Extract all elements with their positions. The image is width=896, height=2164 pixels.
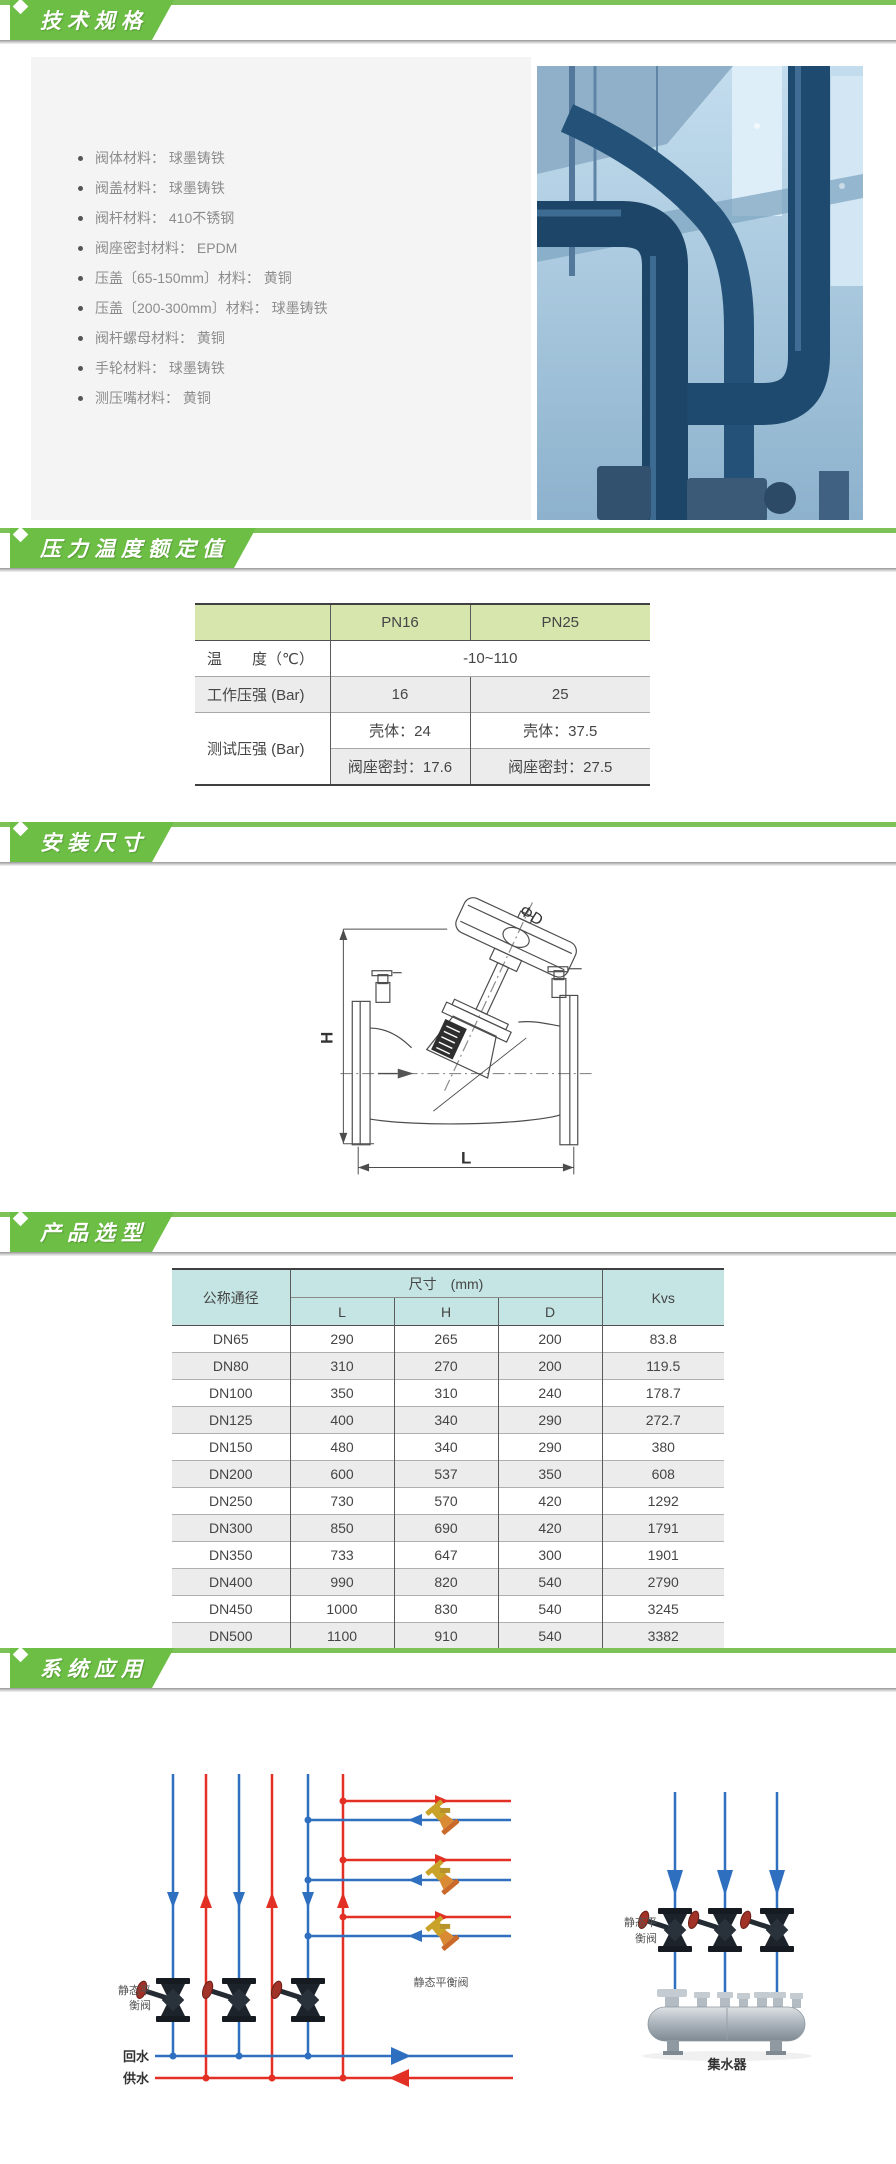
test-pressure-label: 测试压强 (Bar) [195, 713, 330, 786]
table-row: 测试压强 (Bar) 壳体：24 壳体：37.5 [195, 713, 650, 749]
h-cell: 690 [394, 1515, 498, 1542]
kvs-cell: 3245 [602, 1596, 724, 1623]
l-cell: 1100 [290, 1623, 394, 1651]
d-cell: 290 [498, 1434, 602, 1461]
d-cell: 420 [498, 1488, 602, 1515]
h-cell: 820 [394, 1569, 498, 1596]
table-row: DN150480340290380 [172, 1434, 724, 1461]
d-cell: 200 [498, 1326, 602, 1353]
h-cell: 340 [394, 1434, 498, 1461]
kvs-cell: 2790 [602, 1569, 724, 1596]
manifold-nozzles [657, 1989, 803, 2008]
bullet-dot-icon [78, 306, 83, 311]
header-shadow [0, 862, 896, 866]
bullet-text: 压盖〔65-150mm〕材料： 黄铜 [95, 268, 292, 288]
dn-cell: DN450 [172, 1596, 290, 1623]
red-junction-dots [203, 1798, 347, 2082]
dn-cell: DN400 [172, 1569, 290, 1596]
bullet-text: 阀座密封材料： EPDM [95, 238, 237, 258]
d-cell: 200 [498, 1353, 602, 1380]
kvs-cell: 83.8 [602, 1326, 724, 1353]
d-cell: 420 [498, 1515, 602, 1542]
bullet-item: 手轮材料： 球墨铸铁 [78, 353, 531, 383]
d-cell: 540 [498, 1569, 602, 1596]
h-cell: 340 [394, 1407, 498, 1434]
h-cell: 830 [394, 1596, 498, 1623]
bullet-dot-icon [78, 396, 83, 401]
temp-value: -10~110 [330, 641, 650, 677]
l-cell: 600 [290, 1461, 394, 1488]
d-cell: 240 [498, 1380, 602, 1407]
table-row: 温 度（℃） -10~110 [195, 641, 650, 677]
static-balancing-valve-icon [687, 1908, 742, 1952]
l-dimension: L [358, 1147, 574, 1175]
table-row: DN50011009105403382 [172, 1623, 724, 1651]
bullet-text: 压盖〔200-300mm〕材料： 球墨铸铁 [95, 298, 328, 318]
valve-label-line1: 静态平 [118, 1983, 151, 1997]
dn-cell: DN65 [172, 1326, 290, 1353]
water-collector-manifold [642, 1989, 812, 2061]
h-cell: 265 [394, 1326, 498, 1353]
h-cell: 310 [394, 1380, 498, 1407]
section-title-specs: 技术规格 [40, 5, 148, 35]
d-cell: 540 [498, 1596, 602, 1623]
balancing-valve-icon [425, 1798, 461, 1835]
blue-drop-lines [675, 1792, 777, 1997]
bullet-text: 测压嘴材料： 黄铜 [95, 388, 211, 408]
table-row: DN6529026520083.8 [172, 1326, 724, 1353]
pn25-header: PN25 [470, 604, 650, 641]
working-pressure-pn16: 16 [330, 677, 470, 713]
supply-flow-arrow [389, 2069, 409, 2087]
shell-pn16: 壳体：24 [330, 713, 470, 749]
kvs-cell: 3382 [602, 1623, 724, 1651]
bullet-item: 压盖〔200-300mm〕材料： 球墨铸铁 [78, 293, 531, 323]
empty-header-cell [195, 604, 330, 641]
working-pressure-label: 工作压强 (Bar) [195, 677, 330, 713]
bullet-text: 阀杆螺母材料： 黄铜 [95, 328, 225, 348]
h-cell: 647 [394, 1542, 498, 1569]
dn-cell: DN150 [172, 1434, 290, 1461]
table-row: 工作压强 (Bar) 16 25 [195, 677, 650, 713]
table-row: DN100350310240178.7 [172, 1380, 724, 1407]
bullet-dot-icon [78, 336, 83, 341]
h-cell: 570 [394, 1488, 498, 1515]
balancing-valve-icon [425, 1914, 461, 1951]
section-title-installation: 安装尺寸 [40, 827, 148, 857]
blue-branch-arrows [408, 1814, 422, 1942]
dn-cell: DN300 [172, 1515, 290, 1542]
bullet-text: 阀体材料： 球墨铸铁 [95, 148, 225, 168]
h-cell: 270 [394, 1353, 498, 1380]
valve-label-line2: 衡阀 [129, 1998, 151, 2012]
l-label: L [461, 1149, 471, 1168]
dims-header: 尺寸 (mm) [290, 1269, 602, 1298]
section-header-application: 系统应用 [0, 1648, 896, 1694]
static-balancing-valve-icon [270, 1978, 325, 2022]
h-cell: 537 [394, 1461, 498, 1488]
table-header-row: PN16 PN25 [195, 604, 650, 641]
specs-panel: 阀体材料： 球墨铸铁 阀盖材料： 球墨铸铁 阀杆材料： 410不锈钢 阀座密封材… [31, 57, 531, 520]
pipes-photo [537, 66, 863, 520]
table-row: DN2507305704201292 [172, 1488, 724, 1515]
title-block: 安装尺寸 [10, 822, 174, 862]
bullet-text: 阀盖材料： 球墨铸铁 [95, 178, 225, 198]
shell-pn25: 壳体：37.5 [470, 713, 650, 749]
bullet-dot-icon [78, 156, 83, 161]
table-row: DN4009908205402790 [172, 1569, 724, 1596]
l-cell: 400 [290, 1407, 394, 1434]
kvs-cell: 272.7 [602, 1407, 724, 1434]
valve-label-line1: 静态平 [624, 1915, 657, 1929]
header-shadow [0, 1252, 896, 1256]
bullet-dot-icon [78, 276, 83, 281]
pn16-header: PN16 [330, 604, 470, 641]
l-cell: 350 [290, 1380, 394, 1407]
static-balancing-valve-icon [739, 1908, 794, 1952]
bullet-text: 手轮材料： 球墨铸铁 [95, 358, 225, 378]
d-cell: 300 [498, 1542, 602, 1569]
table-row: DN80310270200119.5 [172, 1353, 724, 1380]
bullet-item: 阀杆材料： 410不锈钢 [78, 203, 531, 233]
product-selection-table: 公称通径 尺寸 (mm) Kvs L H D DN6529026520083.8… [172, 1268, 724, 1651]
bullet-item: 阀座密封材料： EPDM [78, 233, 531, 263]
kvs-cell: 380 [602, 1434, 724, 1461]
material-bullet-list: 阀体材料： 球墨铸铁 阀盖材料： 球墨铸铁 阀杆材料： 410不锈钢 阀座密封材… [31, 57, 531, 413]
dn-cell: DN200 [172, 1461, 290, 1488]
table-row: DN3008506904201791 [172, 1515, 724, 1542]
l-cell: 310 [290, 1353, 394, 1380]
dn-cell: DN500 [172, 1623, 290, 1651]
blue-down-arrows [167, 1892, 314, 1908]
h-label: H [317, 1032, 336, 1044]
valve-label-line2: 衡阀 [635, 1931, 657, 1945]
l-cell: 733 [290, 1542, 394, 1569]
d-cell: 540 [498, 1623, 602, 1651]
kvs-cell: 1901 [602, 1542, 724, 1569]
working-pressure-pn25: 25 [470, 677, 650, 713]
valve-dimension-drawing: H L ΦD [287, 876, 643, 1192]
bullet-dot-icon [78, 366, 83, 371]
return-label: 回水 [123, 2049, 150, 2064]
title-block: 产品选型 [10, 1212, 174, 1252]
bullet-text: 阀杆材料： 410不锈钢 [95, 208, 234, 228]
kvs-cell: 608 [602, 1461, 724, 1488]
kvs-cell: 1791 [602, 1515, 724, 1542]
l-header: L [290, 1298, 394, 1326]
section-title-application: 系统应用 [40, 1653, 148, 1683]
table-row: DN125400340290272.7 [172, 1407, 724, 1434]
section-title-selection: 产品选型 [40, 1217, 148, 1247]
red-branches [343, 1801, 511, 1917]
table-header-row: 公称通径 尺寸 (mm) Kvs [172, 1269, 724, 1298]
d-cell: 350 [498, 1461, 602, 1488]
title-block: 技术规格 [10, 0, 174, 40]
pressure-rating-table: PN16 PN25 温 度（℃） -10~110 工作压强 (Bar) 16 2… [195, 603, 650, 786]
table-row: DN3507336473001901 [172, 1542, 724, 1569]
bullet-item: 阀盖材料： 球墨铸铁 [78, 173, 531, 203]
bullet-dot-icon [78, 186, 83, 191]
product-datasheet-page: 技术规格 阀体材料： 球墨铸铁 阀盖材料： 球墨铸铁 阀杆材料： 410不锈钢 … [0, 0, 896, 2164]
section-title-pressure: 压力温度额定值 [40, 533, 229, 563]
yellow-valve-label: 静态平衡阀 [414, 1975, 469, 1989]
section-header-installation: 安装尺寸 [0, 822, 896, 868]
h-dimension: H [317, 929, 447, 1144]
l-cell: 850 [290, 1515, 394, 1542]
blue-junction-dots [170, 1817, 312, 2060]
diameter-label: ΦD [516, 902, 545, 929]
valve-bonnet-handwheel [389, 877, 588, 1117]
bullet-dot-icon [78, 246, 83, 251]
kvs-cell: 119.5 [602, 1353, 724, 1380]
l-cell: 1000 [290, 1596, 394, 1623]
temp-label: 温 度（℃） [195, 641, 330, 677]
blue-branches [308, 1820, 511, 1936]
dn-cell: DN250 [172, 1488, 290, 1515]
blue-down-arrows [667, 1870, 785, 1896]
balancing-valve-icon [425, 1858, 461, 1895]
kvs-cell: 1292 [602, 1488, 724, 1515]
seat-pn25: 阀座密封：27.5 [470, 749, 650, 786]
piping-schematic: 静态平 衡阀 静态平衡阀 回水 供水 [83, 1762, 513, 2092]
static-balancing-valve-icon [637, 1908, 692, 1952]
bullet-item: 阀体材料： 球墨铸铁 [78, 143, 531, 173]
l-cell: 990 [290, 1569, 394, 1596]
d-cell: 290 [498, 1407, 602, 1434]
header-shadow [0, 1688, 896, 1692]
bullet-item: 压盖〔65-150mm〕材料： 黄铜 [78, 263, 531, 293]
dn-cell: DN100 [172, 1380, 290, 1407]
seat-pn16: 阀座密封：17.6 [330, 749, 470, 786]
l-cell: 480 [290, 1434, 394, 1461]
title-block: 压力温度额定值 [10, 528, 256, 568]
return-flow-arrow [391, 2047, 411, 2065]
red-up-arrows [200, 1892, 349, 1908]
section-header-pressure: 压力温度额定值 [0, 528, 896, 574]
table-row: DN200600537350608 [172, 1461, 724, 1488]
manifold-label: 集水器 [706, 2057, 747, 2072]
dn-cell: DN350 [172, 1542, 290, 1569]
kvs-cell: 178.7 [602, 1380, 724, 1407]
h-cell: 910 [394, 1623, 498, 1651]
supply-label: 供水 [122, 2071, 150, 2086]
l-cell: 290 [290, 1326, 394, 1353]
kvs-header: Kvs [602, 1269, 724, 1326]
dn-cell: DN125 [172, 1407, 290, 1434]
manifold-schematic: 静态平 衡阀 集水器 [577, 1762, 857, 2092]
dn-cell: DN80 [172, 1353, 290, 1380]
section-header-selection: 产品选型 [0, 1212, 896, 1258]
header-shadow [0, 40, 896, 44]
h-header: H [394, 1298, 498, 1326]
bullet-dot-icon [78, 216, 83, 221]
dn-header: 公称通径 [172, 1269, 290, 1326]
table-row: DN45010008305403245 [172, 1596, 724, 1623]
l-cell: 730 [290, 1488, 394, 1515]
title-block: 系统应用 [10, 1648, 174, 1688]
valve-body [340, 967, 595, 1145]
section-header-specs: 技术规格 [0, 0, 896, 46]
bullet-item: 阀杆螺母材料： 黄铜 [78, 323, 531, 353]
bullet-item: 测压嘴材料： 黄铜 [78, 383, 531, 413]
static-balancing-valve-icon [201, 1978, 256, 2022]
header-shadow [0, 568, 896, 572]
d-header: D [498, 1298, 602, 1326]
